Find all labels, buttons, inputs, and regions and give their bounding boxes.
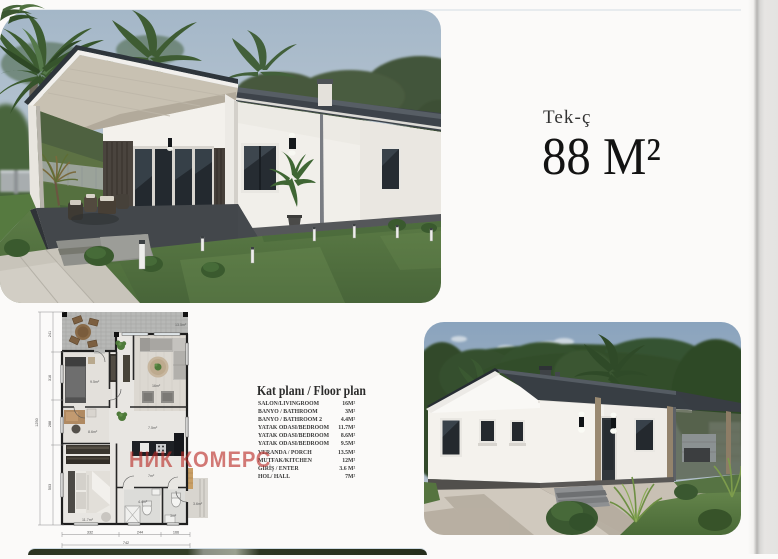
svg-text:11.7m²: 11.7m² [82,518,94,522]
svg-text:4.4m²: 4.4m² [138,500,148,504]
svg-text:332: 332 [87,531,93,535]
svg-text:7.5m²: 7.5m² [148,426,158,430]
svg-text:16m²: 16m² [152,384,161,388]
svg-text:7m²: 7m² [148,474,155,478]
svg-text:742: 742 [123,541,129,545]
svg-text:13.5m²: 13.5m² [175,323,187,327]
svg-text:316: 316 [48,375,52,381]
svg-text:288: 288 [48,421,52,427]
svg-text:503: 503 [48,484,52,490]
svg-text:9.5m²: 9.5m² [90,380,100,384]
svg-text:166: 166 [173,531,179,535]
svg-text:3m²: 3m² [170,514,177,518]
svg-text:3.6m²: 3.6m² [193,502,203,506]
svg-text:241: 241 [48,331,52,337]
svg-text:1250: 1250 [35,418,39,426]
svg-text:244: 244 [137,531,143,535]
svg-text:8.6m²: 8.6m² [88,430,98,434]
